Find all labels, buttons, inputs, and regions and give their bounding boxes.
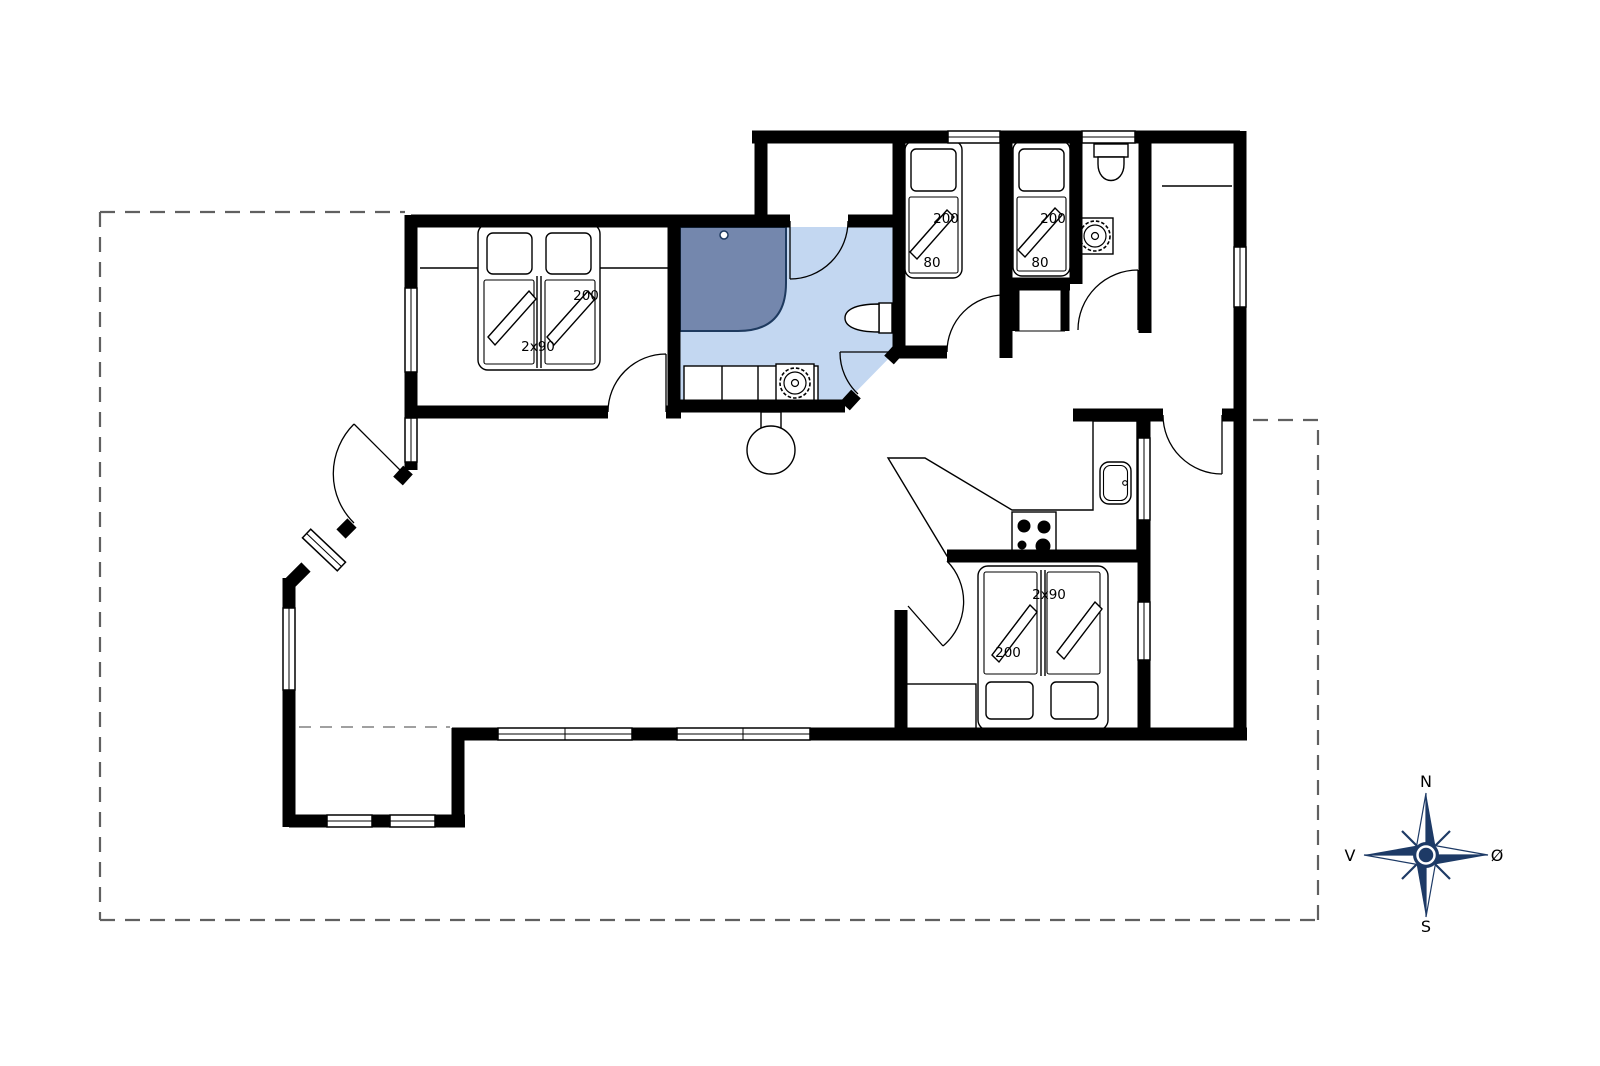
- shower-area: [680, 227, 786, 331]
- compass-rose: N S V Ø: [1345, 772, 1504, 936]
- bed-width-label: 2x90: [521, 339, 555, 355]
- bed-width-label: 2x90: [1032, 587, 1066, 603]
- compass-label-west: V: [1345, 846, 1356, 865]
- door-swing: [1163, 415, 1222, 474]
- pillow: [1019, 149, 1064, 191]
- bed-width-label: 80: [1031, 255, 1048, 271]
- bed-length-label: 200: [573, 288, 599, 304]
- window: [1082, 131, 1135, 143]
- window: [405, 288, 417, 372]
- floor-plan: 200 2x90 200 80 200 80 2x90 200: [0, 0, 1600, 1066]
- bed-length-label: 200: [933, 211, 959, 227]
- floor-plan-canvas: 200 2x90 200 80 200 80 2x90 200: [0, 0, 1600, 1066]
- compass-label-north: N: [1420, 772, 1432, 791]
- window: [1234, 247, 1246, 307]
- door-swing: [1078, 270, 1138, 330]
- door-swing: [333, 424, 404, 523]
- closet-se-bedroom: [903, 684, 976, 730]
- bed-length-label: 200: [995, 645, 1021, 661]
- window: [1138, 602, 1150, 660]
- single-bed-left: 200 80: [905, 141, 962, 278]
- toilet-icon: [1094, 144, 1128, 181]
- pillow: [546, 233, 591, 274]
- bed-width-label: 80: [923, 255, 940, 271]
- kitchen: [888, 421, 1137, 556]
- window: [948, 131, 1000, 143]
- cooktop-icon: [1012, 512, 1056, 556]
- pillow: [911, 149, 956, 191]
- double-bed-left: 200 2x90: [478, 224, 600, 370]
- compass-label-south: S: [1421, 917, 1431, 936]
- shower-head-icon: [720, 231, 728, 239]
- window: [1138, 438, 1150, 520]
- wood-stove-icon: [747, 412, 795, 474]
- double-bed-se: 2x90 200: [978, 566, 1108, 730]
- washbasin-icon: [776, 364, 814, 402]
- bed-length-label: 200: [1040, 211, 1066, 227]
- bathroom: [680, 227, 893, 402]
- window: [405, 418, 417, 462]
- window: [677, 728, 810, 740]
- window: [283, 608, 295, 690]
- window: [390, 815, 435, 827]
- kitchen-sink-icon: [1100, 462, 1131, 504]
- compass-label-east: Ø: [1491, 846, 1504, 865]
- window: [302, 529, 345, 571]
- pillow: [986, 682, 1033, 719]
- door-swing: [908, 561, 964, 646]
- pillow: [1051, 682, 1098, 719]
- door-swing: [608, 354, 666, 412]
- single-bed-right: 200 80: [1013, 141, 1070, 276]
- window: [327, 815, 372, 827]
- pillow: [487, 233, 532, 274]
- toilet-room: [1077, 144, 1128, 254]
- niche-walls: [1015, 284, 1065, 331]
- window: [498, 728, 632, 740]
- door-swing: [947, 295, 1004, 352]
